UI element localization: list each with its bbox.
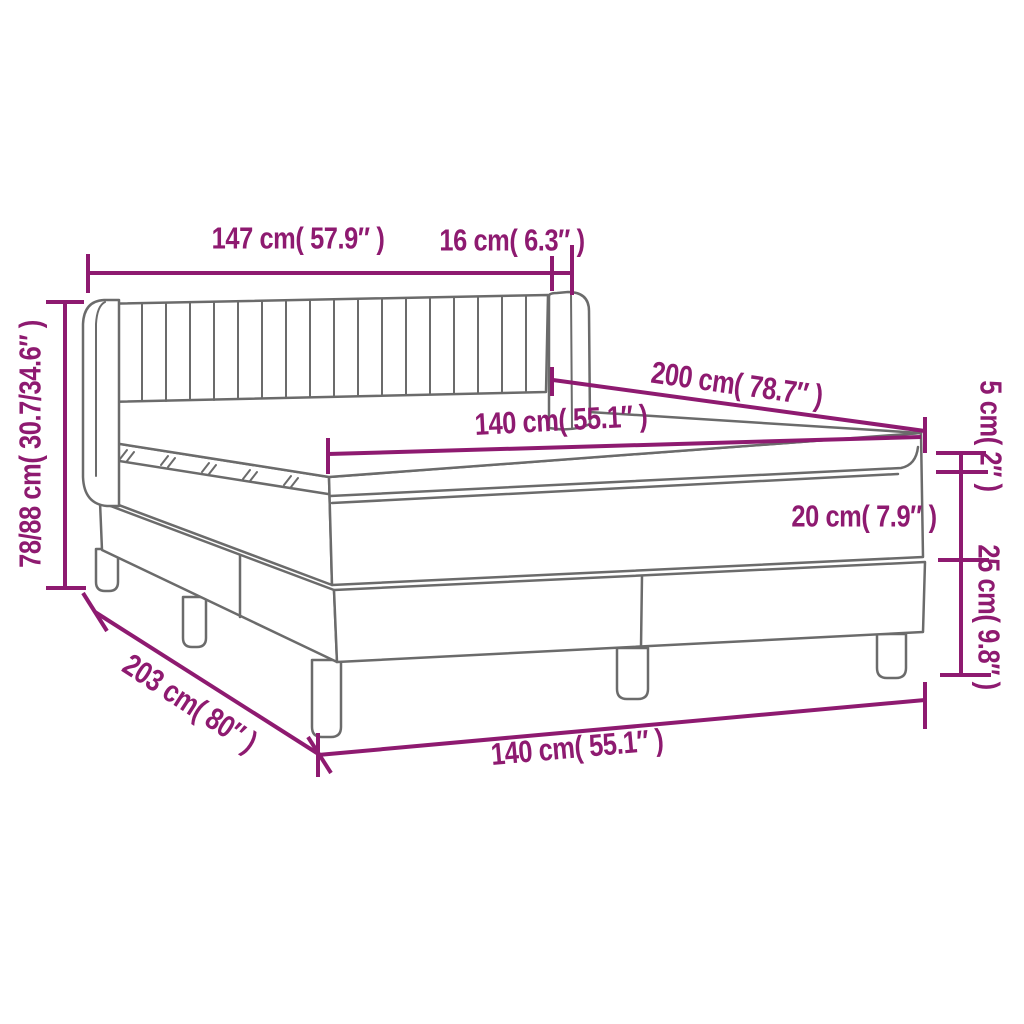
headboard-panel — [95, 295, 548, 402]
bed-leg — [312, 660, 341, 737]
dim-tick — [83, 593, 107, 631]
base-front-seam — [641, 576, 642, 647]
dim-label-topper-height: 5 cm( 2″ ) — [976, 380, 1007, 491]
dim-label-mattress-width-top: 140 cm( 55.1″ ) — [474, 400, 648, 440]
bed-leg — [183, 597, 206, 647]
dim-label-base-height: 25 cm( 9.8″ ) — [974, 544, 1005, 689]
dim-label-total-height: 78/88 cm( 30.7/34.6″ ) — [15, 320, 46, 568]
product-dimension-diagram: 147 cm( 57.9″ ) 16 cm( 6.3″ ) 78/88 cm( … — [0, 0, 1024, 1024]
dim-label-mattress-height: 20 cm( 7.9″ ) — [791, 501, 936, 532]
headboard-left-wing — [83, 300, 119, 506]
dim-label-wing-depth: 16 cm( 6.3″ ) — [439, 225, 584, 256]
bed-leg — [617, 648, 648, 699]
dim-label-head-width: 147 cm( 57.9″ ) — [212, 223, 385, 254]
bed-leg — [877, 634, 906, 678]
